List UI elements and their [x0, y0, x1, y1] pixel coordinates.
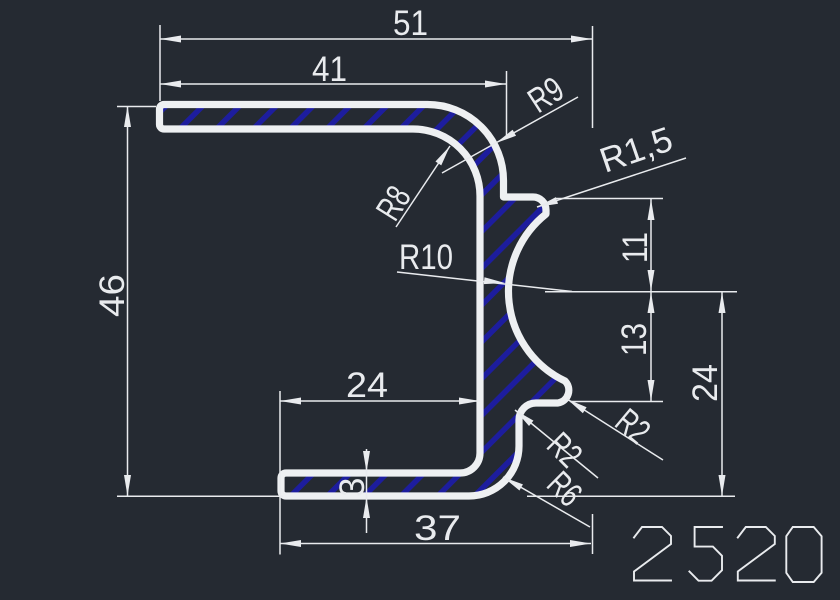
svg-text:13: 13 — [615, 323, 654, 356]
svg-text:51: 51 — [393, 4, 428, 43]
svg-text:24: 24 — [346, 366, 388, 405]
svg-text:24: 24 — [686, 364, 725, 402]
svg-text:R10: R10 — [399, 238, 453, 277]
svg-text:11: 11 — [616, 232, 655, 263]
svg-text:41: 41 — [312, 50, 347, 89]
svg-text:37: 37 — [414, 509, 461, 548]
svg-text:46: 46 — [93, 274, 132, 317]
svg-text:3: 3 — [333, 478, 372, 497]
